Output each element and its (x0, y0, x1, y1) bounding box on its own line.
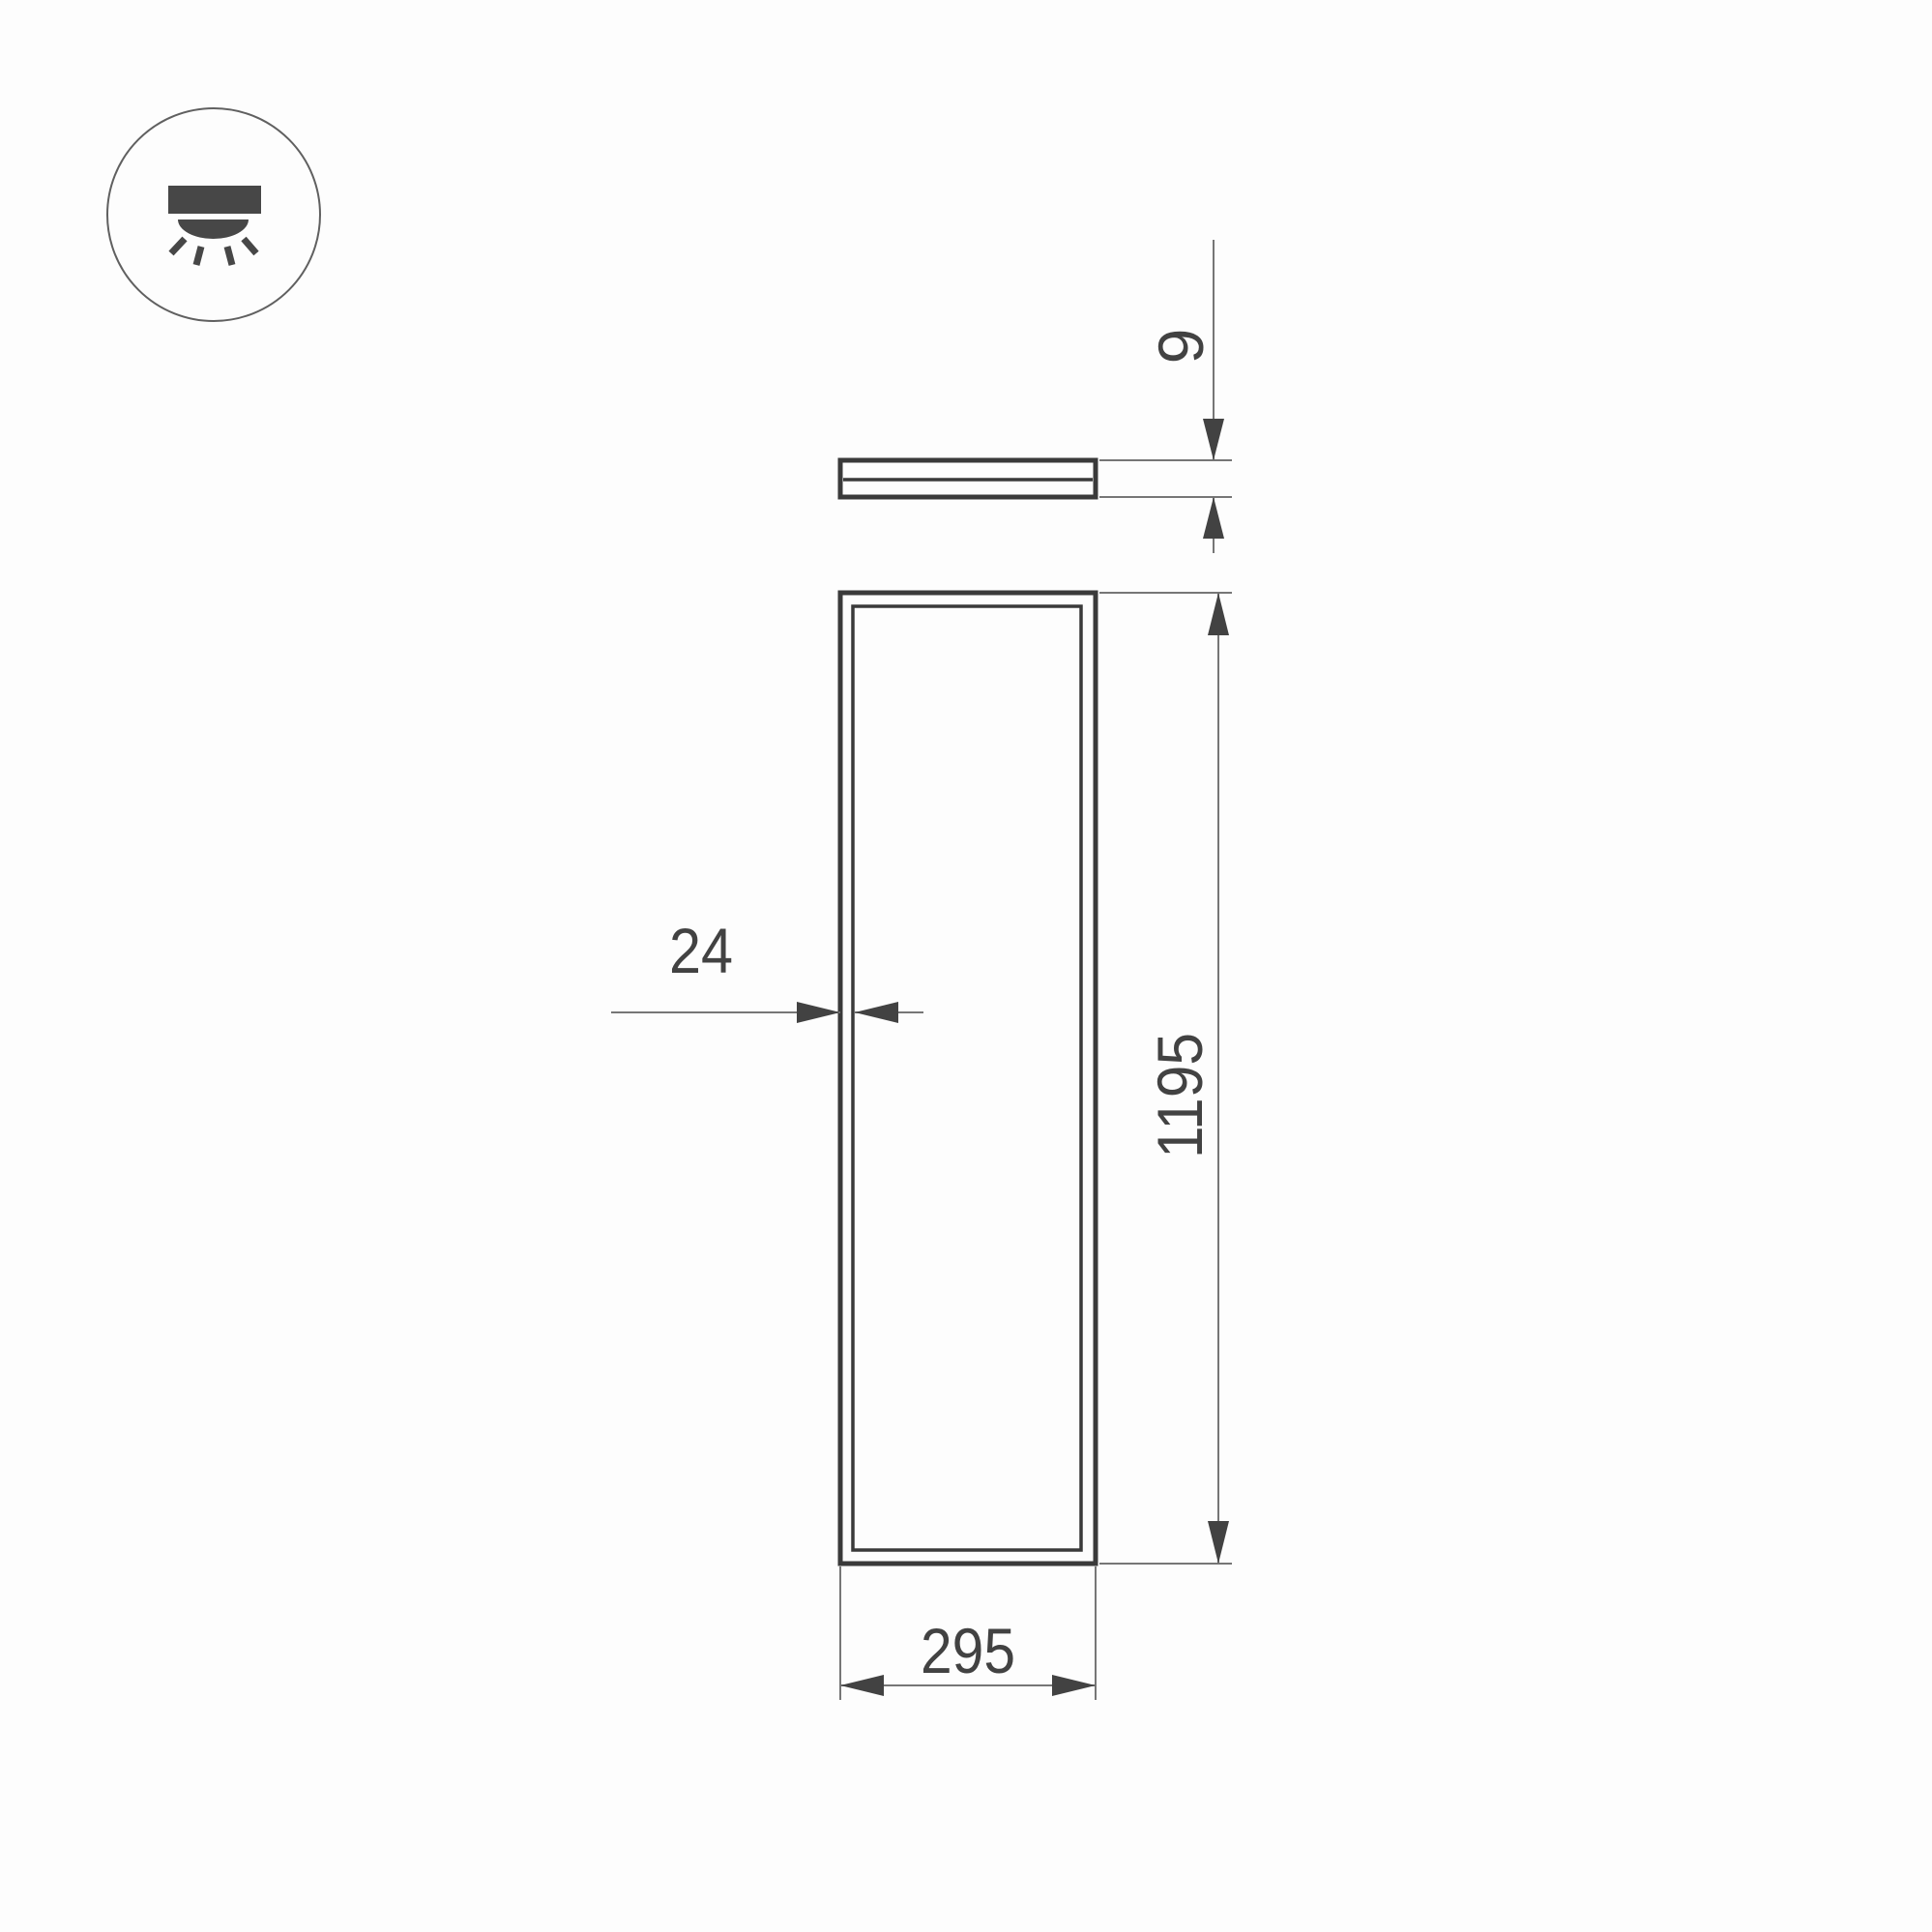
dimension-label-thickness: 9 (1145, 329, 1216, 365)
icon-fixture-body (168, 186, 261, 214)
dimension-label-width: 295 (921, 1615, 1015, 1686)
dimension-label-frame: 24 (669, 915, 733, 986)
technical-drawing: 9 1195 24 (0, 0, 1932, 1932)
drawing-canvas: 9 1195 24 (0, 0, 1932, 1932)
dimension-label-length: 1195 (1144, 1033, 1215, 1158)
